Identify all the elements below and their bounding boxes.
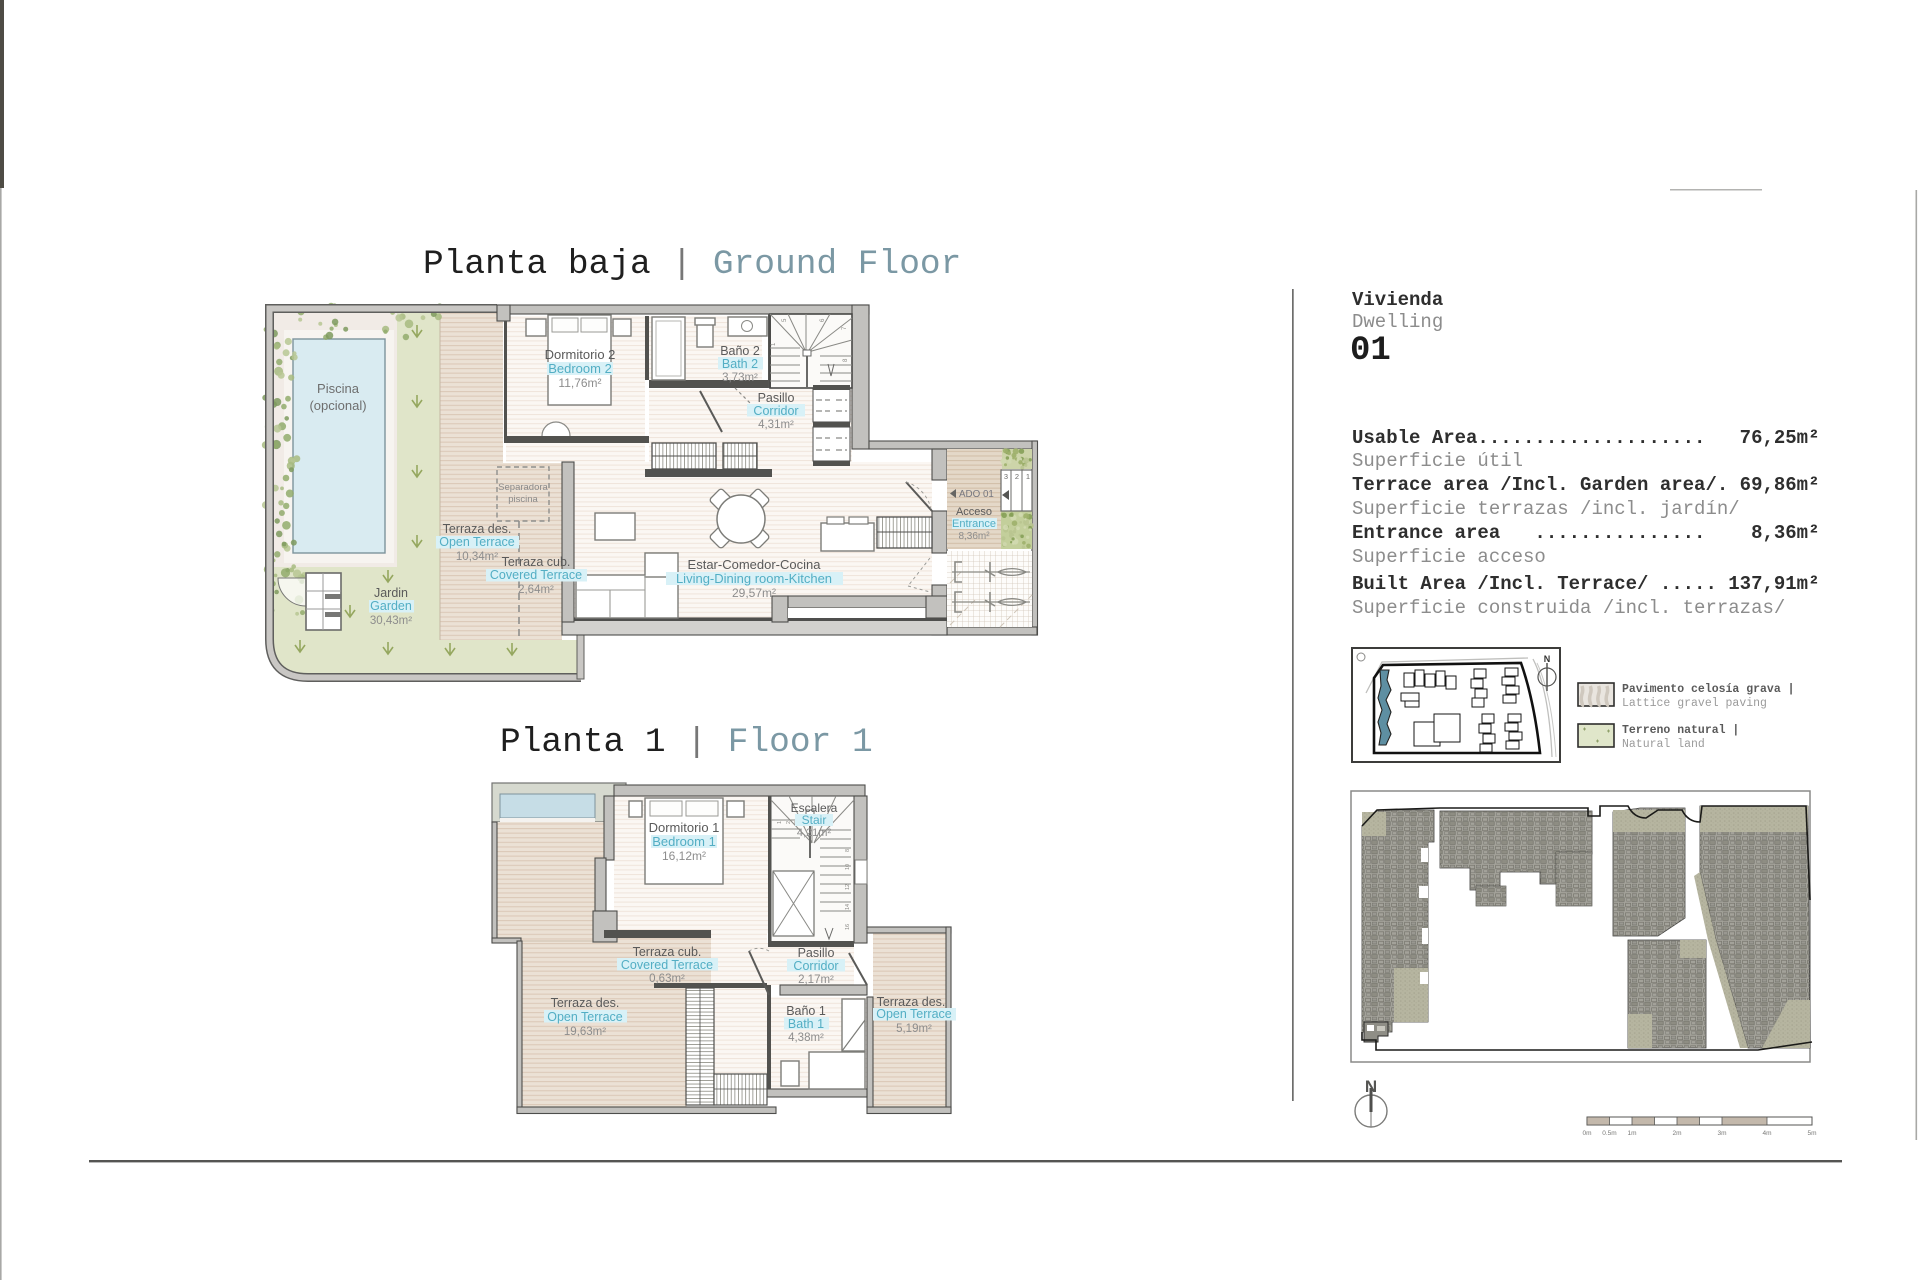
svg-text:Bedroom 2: Bedroom 2 [548, 361, 612, 376]
svg-text:2,64m²: 2,64m² [518, 584, 554, 596]
svg-text:Dwelling: Dwelling [1352, 311, 1443, 333]
svg-text:Terraza cub.: Terraza cub. [633, 945, 702, 959]
svg-text:Bath 1: Bath 1 [788, 1017, 824, 1031]
svg-text:Superficie construida /incl. t: Superficie construida /incl. terrazas/ [1352, 597, 1785, 619]
svg-text:Piscina: Piscina [317, 381, 360, 396]
svg-text:0m: 0m [1582, 1130, 1591, 1137]
svg-text:Dormitorio 1: Dormitorio 1 [649, 820, 720, 835]
svg-text:3m: 3m [1717, 1130, 1726, 1137]
svg-text:14: 14 [845, 904, 851, 910]
svg-text:12: 12 [845, 884, 851, 890]
svg-text:Corridor: Corridor [793, 959, 838, 973]
svg-text:30,43m²: 30,43m² [370, 615, 412, 627]
svg-text:Terraza cub.: Terraza cub. [502, 555, 571, 569]
svg-text:Pasillo: Pasillo [798, 946, 835, 960]
svg-text:Entrance: Entrance [952, 518, 996, 530]
svg-text:Open Terrace: Open Terrace [547, 1010, 623, 1024]
svg-text:Covered Terrace: Covered Terrace [490, 568, 582, 582]
svg-text:16: 16 [845, 924, 851, 930]
svg-text:Garden: Garden [370, 599, 412, 613]
svg-text:2: 2 [1015, 472, 1019, 481]
svg-text:Terreno natural |: Terreno natural | [1622, 724, 1739, 737]
svg-text:1: 1 [777, 821, 783, 824]
svg-text:1: 1 [1026, 472, 1030, 481]
svg-text:Separadora: Separadora [498, 482, 548, 493]
svg-text:Planta 1 | Floor 1: Planta 1 | Floor 1 [500, 723, 873, 762]
svg-text:Lattice gravel paving: Lattice gravel paving [1622, 697, 1767, 710]
svg-text:5,19m²: 5,19m² [896, 1023, 932, 1035]
svg-text:1m: 1m [1627, 1130, 1636, 1137]
svg-text:(opcional): (opcional) [309, 398, 366, 413]
svg-text:0,63m²: 0,63m² [649, 973, 685, 985]
svg-text:Terraza des.: Terraza des. [443, 522, 512, 536]
svg-text:Superficie terrazas /incl. jar: Superficie terrazas /incl. jardín/ [1352, 498, 1740, 520]
svg-text:10: 10 [845, 864, 851, 870]
svg-text:4,31m²: 4,31m² [758, 419, 794, 431]
svg-text:Usable Area...................: Usable Area.................... 76,25m² [1352, 427, 1819, 449]
svg-text:Bedroom 1: Bedroom 1 [652, 834, 716, 849]
svg-text:2m: 2m [1672, 1130, 1681, 1137]
svg-text:11,76m²: 11,76m² [558, 376, 601, 390]
svg-text:Terraza des.: Terraza des. [551, 996, 620, 1010]
svg-text:ADO 01: ADO 01 [959, 489, 994, 500]
svg-text:16,12m²: 16,12m² [662, 849, 706, 863]
svg-text:Baño 2: Baño 2 [720, 344, 760, 358]
svg-text:10,34m²: 10,34m² [456, 551, 498, 563]
svg-text:Open Terrace: Open Terrace [439, 535, 515, 549]
svg-text:3,73m²: 3,73m² [722, 372, 758, 384]
svg-text:4,38m²: 4,38m² [788, 1032, 824, 1044]
svg-text:Acceso: Acceso [956, 506, 992, 518]
svg-text:2: 2 [786, 821, 792, 824]
svg-text:5m: 5m [1807, 1130, 1816, 1137]
svg-text:Natural land: Natural land [1622, 738, 1705, 751]
svg-text:19,63m²: 19,63m² [564, 1026, 606, 1038]
svg-text:Estar-Comedor-Cocina: Estar-Comedor-Cocina [688, 557, 822, 572]
svg-text:Entrance area ..............: Entrance area ............... 8,36m² [1352, 522, 1819, 544]
svg-text:Planta baja | Ground Floor: Planta baja | Ground Floor [423, 245, 961, 284]
svg-text:Pavimento celosía grava |: Pavimento celosía grava | [1622, 683, 1795, 696]
svg-text:Pasillo: Pasillo [758, 391, 795, 405]
svg-text:3: 3 [1004, 472, 1008, 481]
svg-text:piscina: piscina [508, 494, 538, 505]
svg-text:4,21m²: 4,21m² [797, 827, 832, 839]
svg-text:Living-Dining room-Kitchen: Living-Dining room-Kitchen [676, 571, 832, 586]
svg-text:Baño 1: Baño 1 [786, 1004, 826, 1018]
svg-text:8: 8 [845, 849, 851, 852]
svg-text:Built Area /Incl. Terrace/ ...: Built Area /Incl. Terrace/ ..... 137,91m… [1352, 573, 1819, 595]
svg-text:Dormitorio 2: Dormitorio 2 [545, 347, 616, 362]
svg-text:Terrace area /Incl. Garden are: Terrace area /Incl. Garden area/. 69,86m… [1352, 474, 1819, 496]
svg-text:4m: 4m [1762, 1130, 1771, 1137]
svg-text:Stair: Stair [802, 813, 827, 827]
svg-text:Bath 2: Bath 2 [722, 357, 758, 371]
svg-text:01: 01 [1350, 332, 1391, 370]
svg-text:Corridor: Corridor [753, 404, 798, 418]
svg-text:Vivienda: Vivienda [1352, 289, 1443, 311]
svg-text:N: N [1544, 654, 1551, 664]
svg-text:Open Terrace: Open Terrace [876, 1007, 952, 1021]
svg-text:29,57m²: 29,57m² [732, 586, 776, 600]
svg-text:Superficie útil: Superficie útil [1352, 450, 1523, 472]
svg-text:Superficie acceso: Superficie acceso [1352, 546, 1546, 568]
svg-text:0.5m: 0.5m [1602, 1130, 1616, 1137]
svg-text:8,36m²: 8,36m² [958, 531, 990, 542]
svg-text:Jardin: Jardin [374, 586, 408, 600]
svg-text:Covered Terrace: Covered Terrace [621, 958, 713, 972]
svg-text:2,17m²: 2,17m² [798, 974, 834, 986]
